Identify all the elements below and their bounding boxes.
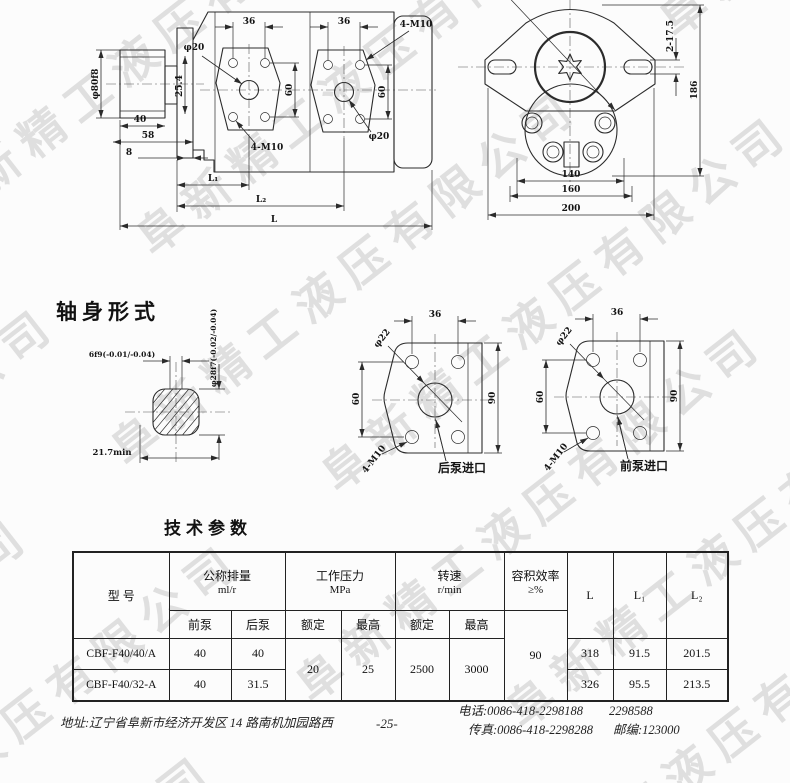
table-row: CBF-F40/40/A 40 40 20 25 2500 3000 318 9… — [73, 638, 728, 669]
cell-L1: 95.5 — [613, 669, 666, 701]
dim-label: 36 — [429, 310, 442, 320]
cell-model: CBF-F40/40/A — [73, 638, 169, 669]
rear-port-flange-drawing: 36 60 90 φ22 4-M10 后泵进口 — [338, 296, 568, 506]
dim-label: 40 — [134, 115, 147, 125]
col-efficiency-label: 容积效率 — [505, 567, 567, 584]
dim-label: 8 — [126, 148, 132, 158]
rear-inlet-label: 后泵进口 — [438, 460, 486, 475]
footer-phone-line: 电话:0086-418-22981882298588 — [458, 700, 653, 719]
subcol-speed-max: 最高 — [449, 610, 504, 638]
footer-phone: 电话:0086-418-2298188 — [458, 704, 583, 718]
dim-label: 200 — [562, 204, 581, 214]
col-displacement-label: 公称排量 — [170, 567, 285, 584]
dim-label: 160 — [562, 185, 581, 195]
subcol-pressure-max: 最高 — [341, 610, 395, 638]
port-dia-label: φ20 — [184, 43, 205, 53]
dim-label: 60 — [352, 393, 362, 406]
front-port-flange-drawing: 36 60 90 φ22 4-M10 前泵进口 — [538, 296, 768, 506]
side-view-drawing: 36 36 4-M10 φ20 φ80f8 25.4 40 58 8 60 60 — [82, 0, 442, 232]
col-pressure-label: 工作压力 — [286, 567, 395, 584]
cell-speed-max: 3000 — [449, 638, 504, 701]
col-L2: L₂ — [666, 552, 728, 638]
bolt-spec-label: 4-M10 — [542, 442, 570, 474]
col-speed-label: 转速 — [396, 567, 504, 584]
col-displacement-unit: ml/r — [170, 584, 285, 596]
footer-fax-line: 传真:0086-418-2298288邮编:123000 — [468, 719, 680, 738]
dim-label: 60 — [378, 86, 388, 99]
col-speed-unit: r/min — [396, 584, 504, 596]
col-speed: 转速 r/min — [395, 552, 504, 610]
col-L: L — [567, 552, 613, 638]
port-dia-label: φ22 — [554, 326, 575, 348]
front-inlet-label: 前泵进口 — [620, 458, 668, 473]
col-pressure-unit: MPa — [286, 584, 395, 596]
bolt-spec-label: 4-M10 — [360, 444, 388, 476]
dim-label: 58 — [142, 131, 155, 141]
port-dia-label: φ20 — [369, 132, 390, 142]
dim-label: 90 — [488, 392, 498, 405]
footer-postcode: 邮编:123000 — [613, 723, 680, 737]
cell-L2: 213.5 — [666, 669, 728, 701]
cell-pressure-rated: 20 — [285, 638, 341, 701]
dim-label: 60 — [285, 84, 295, 97]
dim-label: 21.7min — [92, 448, 131, 458]
subcol-speed-rated: 额定 — [395, 610, 449, 638]
parameters-table: 型 号 公称排量 ml/r 工作压力 MPa 转速 r/min 容积效率 ≥% … — [72, 551, 729, 702]
col-efficiency-unit: ≥% — [505, 584, 567, 596]
footer-fax: 传真:0086-418-2298288 — [468, 723, 593, 737]
table-header-row: 型 号 公称排量 ml/r 工作压力 MPa 转速 r/min 容积效率 ≥% … — [73, 552, 728, 610]
parameters-title: 技术参数 — [164, 514, 252, 539]
col-L1: L₁ — [613, 552, 666, 638]
cell-rear-pump: 31.5 — [231, 669, 285, 701]
col-pressure: 工作压力 MPa — [285, 552, 395, 610]
dim-label: L — [271, 215, 278, 225]
footer-phone2: 2298588 — [609, 704, 653, 718]
cell-efficiency: 90 — [504, 610, 567, 701]
bolt-spec-label: 4-M10 — [400, 20, 432, 30]
front-view-drawing: 2-17.5 186 140 160 200 — [452, 0, 790, 232]
dim-label: 2-17.5 — [666, 20, 676, 52]
page-number: -25- — [376, 716, 398, 732]
subcol-front-pump: 前泵 — [169, 610, 231, 638]
cell-front-pump: 40 — [169, 669, 231, 701]
dim-label: L₂ — [256, 195, 266, 205]
footer-address: 地址:辽宁省阜新市经济开发区 14 路南机加园路西 — [60, 712, 333, 731]
dim-label: 36 — [611, 308, 624, 318]
dim-label: 6f9(-0.01/-0.04) — [89, 350, 155, 359]
dim-label: L₁ — [208, 174, 218, 184]
dim-label: 36 — [338, 17, 351, 27]
dim-label: 186 — [690, 81, 700, 100]
dim-label: 90 — [670, 390, 680, 403]
cell-pressure-max: 25 — [341, 638, 395, 701]
dim-label: 140 — [562, 170, 581, 180]
subcol-pressure-rated: 额定 — [285, 610, 341, 638]
dim-label: 60 — [536, 391, 546, 404]
catalog-page: 阜新精工液压有限公司 阜新精工液压有限公司 阜新精工液压有限公司 阜新精工液压有… — [0, 0, 790, 783]
dim-label: φ28f7(-0.02/-0.04) — [209, 309, 218, 387]
dim-label: φ80f8 — [91, 69, 101, 100]
shaft-section-drawing: 6f9(-0.01/-0.04) φ28f7(-0.02/-0.04) 21.7… — [85, 310, 335, 480]
subcol-rear-pump: 后泵 — [231, 610, 285, 638]
bolt-spec-label: 4-M10 — [251, 143, 283, 153]
cell-L: 326 — [567, 669, 613, 701]
port-dia-label: φ22 — [372, 328, 393, 350]
cell-model: CBF-F40/32-A — [73, 669, 169, 701]
col-displacement: 公称排量 ml/r — [169, 552, 285, 610]
cell-L2: 201.5 — [666, 638, 728, 669]
col-model: 型 号 — [73, 552, 169, 638]
dim-label: 25.4 — [175, 75, 185, 97]
cell-L1: 91.5 — [613, 638, 666, 669]
dim-label: 36 — [243, 17, 256, 27]
cell-rear-pump: 40 — [231, 638, 285, 669]
cell-front-pump: 40 — [169, 638, 231, 669]
cell-speed-rated: 2500 — [395, 638, 449, 701]
cell-L: 318 — [567, 638, 613, 669]
col-efficiency: 容积效率 ≥% — [504, 552, 567, 610]
